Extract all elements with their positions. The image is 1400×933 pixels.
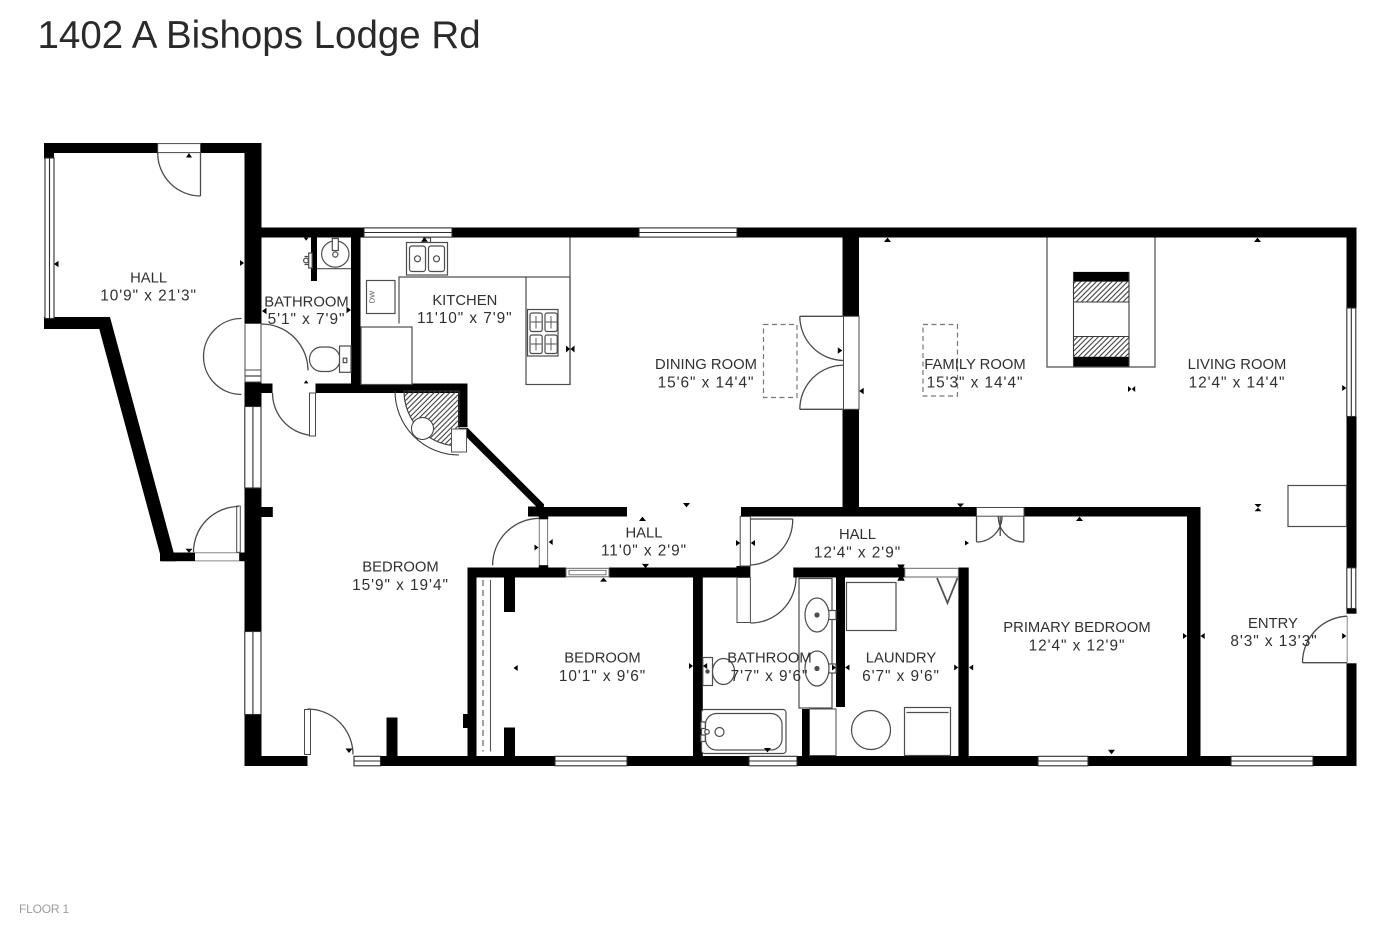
svg-text:PRIMARY BEDROOM: PRIMARY BEDROOM: [1003, 620, 1150, 636]
svg-text:1402 A Bishops Lodge Rd: 1402 A Bishops Lodge Rd: [38, 14, 481, 57]
svg-text:HALL: HALL: [625, 525, 662, 541]
svg-text:11'10" x 7'9": 11'10" x 7'9": [417, 310, 513, 327]
svg-text:FAMILY ROOM: FAMILY ROOM: [924, 357, 1025, 373]
svg-text:7'7" x 9'6": 7'7" x 9'6": [731, 668, 809, 685]
svg-text:8'3" x 13'3": 8'3" x 13'3": [1230, 633, 1317, 650]
svg-text:ENTRY: ENTRY: [1248, 616, 1298, 632]
svg-text:FLOOR 1: FLOOR 1: [19, 902, 69, 916]
svg-text:6'7" x 9'6": 6'7" x 9'6": [862, 668, 940, 685]
svg-text:15'9" x 19'4": 15'9" x 19'4": [352, 577, 449, 594]
svg-text:BEDROOM: BEDROOM: [362, 559, 438, 575]
svg-text:DINING ROOM: DINING ROOM: [655, 357, 757, 373]
svg-text:BEDROOM: BEDROOM: [564, 650, 640, 666]
svg-text:11'0" x 2'9": 11'0" x 2'9": [601, 543, 687, 560]
svg-text:BATHROOM: BATHROOM: [264, 294, 348, 310]
svg-text:5'1" x 7'9": 5'1" x 7'9": [268, 311, 346, 328]
svg-text:15'6" x 14'4": 15'6" x 14'4": [658, 375, 755, 392]
svg-text:12'4" x 14'4": 12'4" x 14'4": [1189, 375, 1286, 392]
svg-text:10'1" x 9'6": 10'1" x 9'6": [559, 668, 646, 685]
svg-text:10'9" x 21'3": 10'9" x 21'3": [100, 288, 197, 305]
svg-text:15'3" x 14'4": 15'3" x 14'4": [927, 375, 1024, 392]
svg-text:HALL: HALL: [130, 271, 167, 287]
svg-text:12'4" x 12'9": 12'4" x 12'9": [1029, 638, 1126, 655]
svg-text:LAUNDRY: LAUNDRY: [866, 650, 937, 666]
svg-text:LIVING ROOM: LIVING ROOM: [1188, 357, 1287, 373]
svg-text:DW: DW: [368, 290, 377, 303]
svg-text:KITCHEN: KITCHEN: [432, 293, 497, 309]
svg-text:HALL: HALL: [839, 527, 876, 543]
svg-text:12'4" x 2'9": 12'4" x 2'9": [814, 544, 901, 561]
svg-text:BATHROOM: BATHROOM: [727, 650, 811, 666]
